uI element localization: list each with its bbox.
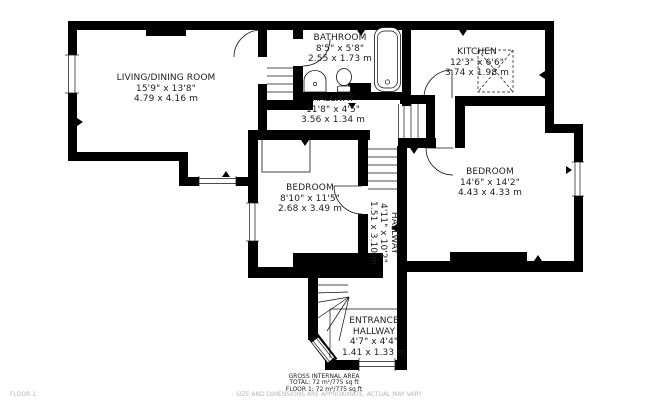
room-dims-metric: 2.55 x 1.73 m: [270, 54, 410, 65]
room-label-hallway: HALLWAY 11'8" x 4'5" 3.56 x 1.34 m: [273, 94, 393, 126]
room-dims-metric: 2.68 x 3.49 m: [250, 204, 370, 215]
room-label-hallway-vertical: HALLWAY 4'11" x 10'2" 1.51 x 3.10 m: [367, 193, 399, 273]
room-dims-metric: 4.79 x 4.16 m: [86, 94, 246, 105]
room-label-bedroom-right: BEDROOM 14'6" x 14'2" 4.43 x 4.33 m: [430, 167, 550, 199]
bedroom-right-window: [572, 162, 584, 196]
room-dims-metric: 1.41 x 1.33 m: [334, 348, 414, 359]
room-dims-imperial: 4'11" x 10'2": [378, 193, 389, 273]
room-dims-imperial: 8'10" x 11'5": [250, 194, 370, 205]
room-label-entrance-hallway: ENTRANCE HALLWAY 4'7" x 4'4" 1.41 x 1.33…: [334, 316, 414, 358]
disclaimer: SIZE AND DIMENSIONS ARE APPROXIMATE, ACT…: [229, 392, 429, 398]
room-name: KITCHEN: [407, 47, 547, 58]
room-dims-imperial: 12'3" x 6'6": [407, 58, 547, 69]
room-dims-imperial: 8'5" x 5'8": [270, 44, 410, 55]
room-name: HALLWAY: [273, 94, 393, 105]
room-dims-metric: 4.43 x 4.33 m: [430, 188, 550, 199]
room-dims-metric: 3.74 x 1.98 m: [407, 68, 547, 79]
room-name: BATHROOM: [270, 33, 410, 44]
floor-label: FLOOR 1: [10, 391, 36, 398]
floor-plan: LIVING/DINING ROOM 15'9" x 13'8" 4.79 x …: [0, 0, 650, 406]
room-label-bedroom-left: BEDROOM 8'10" x 11'5" 2.68 x 3.49 m: [250, 183, 370, 215]
room-name: BEDROOM: [250, 183, 370, 194]
stairs-landing-flight-east: [399, 104, 419, 138]
room-label-living-dining: LIVING/DINING ROOM 15'9" x 13'8" 4.79 x …: [86, 73, 246, 105]
toilet: [337, 69, 352, 93]
room-name: LIVING/DINING ROOM: [86, 73, 246, 84]
sink: [304, 71, 326, 93]
room-label-bathroom: BATHROOM 8'5" x 5'8" 2.55 x 1.73 m: [270, 33, 410, 65]
room-dims-imperial: 11'8" x 4'5": [273, 105, 393, 116]
entrance-window: [359, 358, 395, 371]
living-room-door: [234, 30, 261, 57]
stairs-upper-flight-north: [267, 68, 293, 92]
living-room-window: [65, 55, 79, 93]
room-dims-imperial: 14'6" x 14'2": [430, 178, 550, 189]
room-name: BEDROOM: [430, 167, 550, 178]
room-dims-metric: 1.51 x 3.10 m: [368, 193, 379, 273]
room-dims-imperial: 4'7" x 4'4": [334, 337, 414, 348]
room-dims-imperial: 15'9" x 13'8": [86, 84, 246, 95]
room-label-kitchen: KITCHEN 12'3" x 6'6" 3.74 x 1.98 m: [407, 47, 547, 79]
living-room-window-2: [199, 176, 236, 186]
room-name: ENTRANCE HALLWAY: [334, 316, 414, 337]
stairs-main-flight: [368, 149, 397, 189]
room-dims-metric: 3.56 x 1.34 m: [273, 115, 393, 126]
room-name: HALLWAY: [389, 193, 400, 273]
